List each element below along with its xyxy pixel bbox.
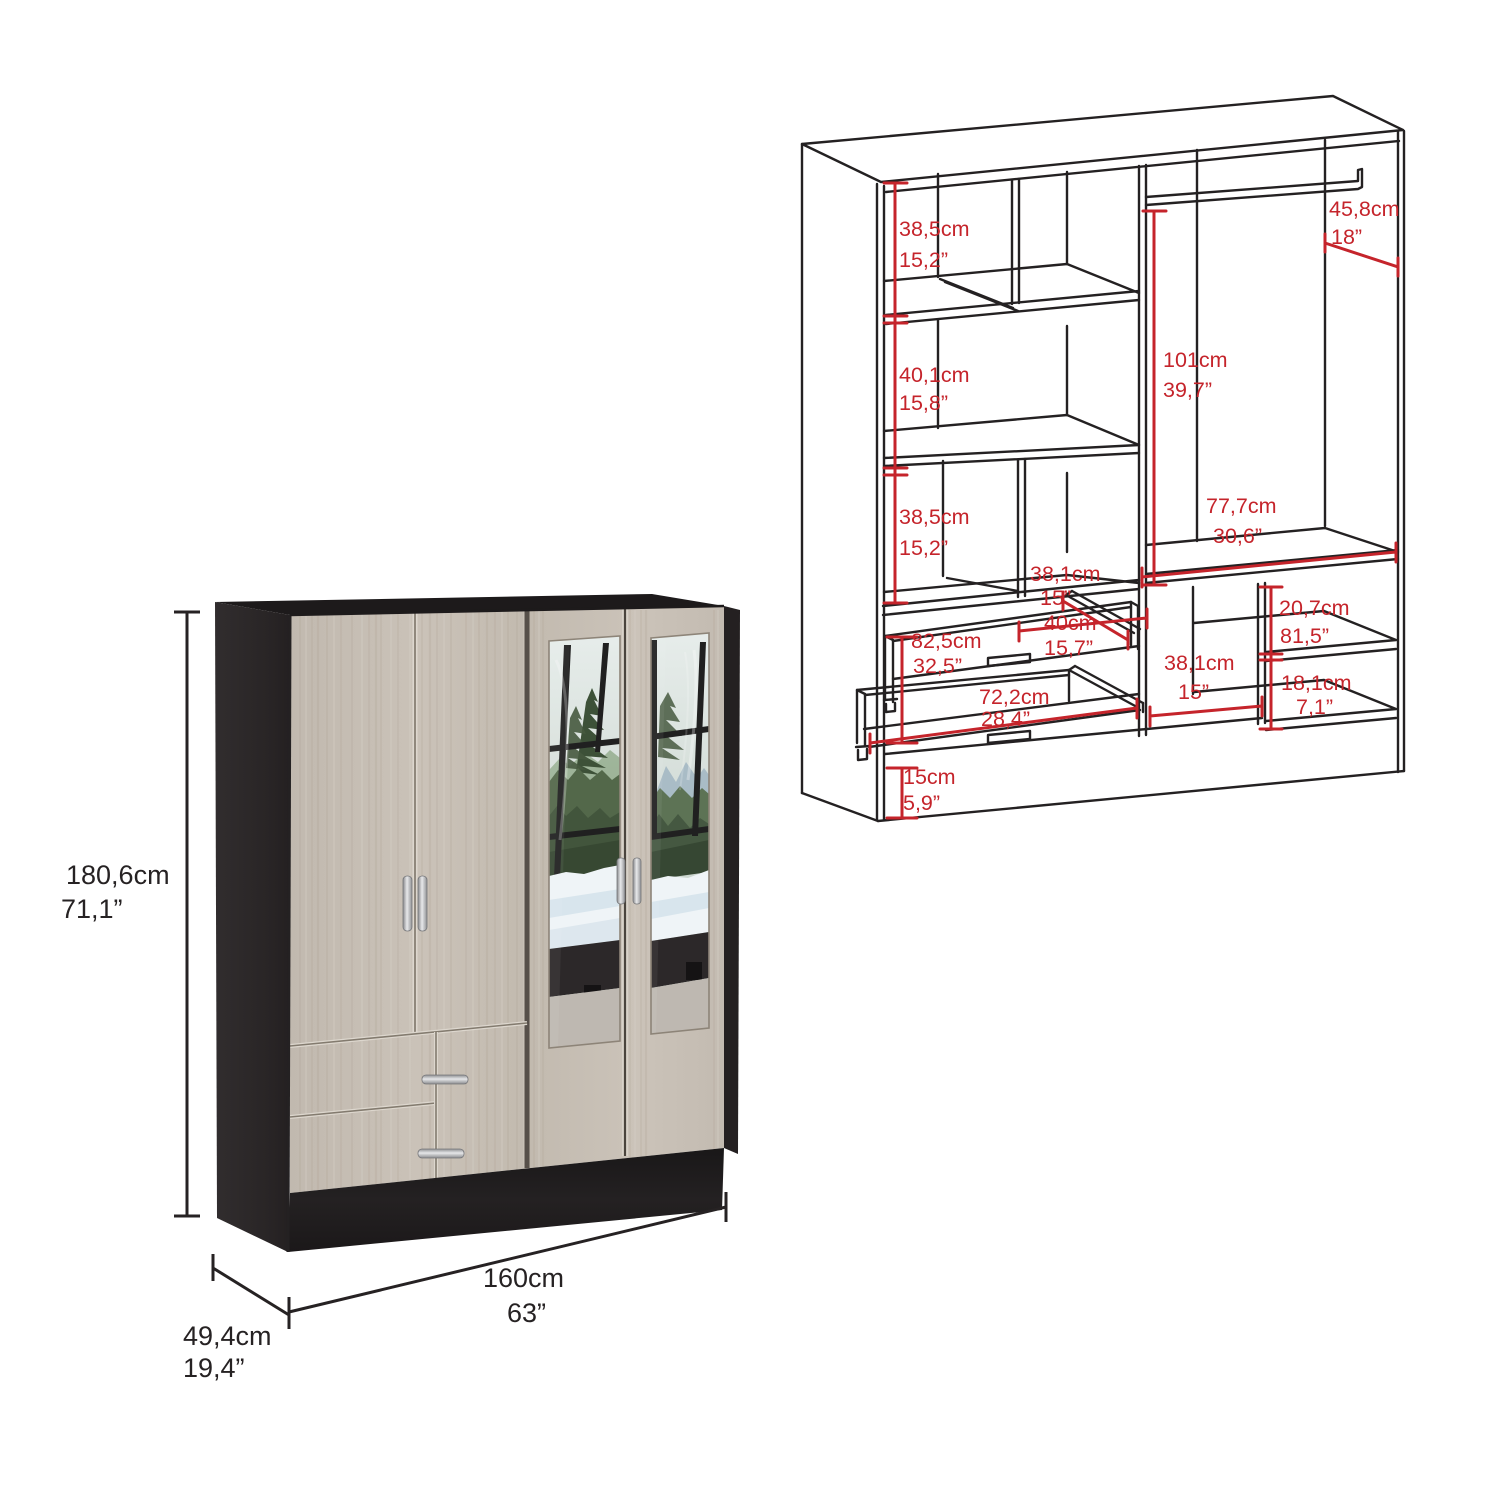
svg-text:40,1cm: 40,1cm: [899, 363, 970, 387]
svg-text:72,2cm: 72,2cm: [979, 685, 1050, 709]
svg-text:45,8cm: 45,8cm: [1329, 197, 1400, 221]
svg-text:15,7”: 15,7”: [1044, 636, 1093, 660]
svg-text:15,2”: 15,2”: [899, 248, 948, 272]
svg-text:5,9”: 5,9”: [903, 791, 940, 815]
svg-text:15,8”: 15,8”: [899, 391, 948, 415]
svg-text:39,7”: 39,7”: [1163, 378, 1212, 402]
svg-text:63”: 63”: [507, 1298, 546, 1328]
svg-text:160cm: 160cm: [483, 1263, 564, 1293]
svg-text:15”: 15”: [1178, 680, 1209, 704]
svg-text:30,6”: 30,6”: [1213, 524, 1262, 548]
svg-text:20,7cm: 20,7cm: [1279, 596, 1350, 620]
svg-text:7,1”: 7,1”: [1296, 695, 1333, 719]
svg-text:71,1”: 71,1”: [61, 894, 123, 924]
svg-text:38,5cm: 38,5cm: [899, 505, 970, 529]
svg-text:101cm: 101cm: [1163, 348, 1228, 372]
svg-text:38,1cm: 38,1cm: [1030, 562, 1101, 586]
svg-text:28,4”: 28,4”: [981, 707, 1030, 731]
svg-text:15cm: 15cm: [903, 765, 956, 789]
svg-text:82,5cm: 82,5cm: [911, 629, 982, 653]
svg-text:15,2”: 15,2”: [899, 536, 948, 560]
svg-text:38,5cm: 38,5cm: [899, 217, 970, 241]
svg-text:18,1cm: 18,1cm: [1281, 671, 1352, 695]
svg-text:19,4”: 19,4”: [183, 1353, 245, 1383]
svg-text:180,6cm: 180,6cm: [66, 860, 170, 890]
svg-text:40cm: 40cm: [1044, 611, 1097, 635]
svg-text:32,5”: 32,5”: [913, 654, 962, 678]
svg-text:15”: 15”: [1040, 586, 1071, 610]
svg-text:18”: 18”: [1331, 225, 1362, 249]
svg-text:38,1cm: 38,1cm: [1164, 651, 1235, 675]
svg-text:49,4cm: 49,4cm: [183, 1321, 272, 1351]
svg-text:77,7cm: 77,7cm: [1206, 494, 1277, 518]
svg-text:81,5”: 81,5”: [1280, 624, 1329, 648]
